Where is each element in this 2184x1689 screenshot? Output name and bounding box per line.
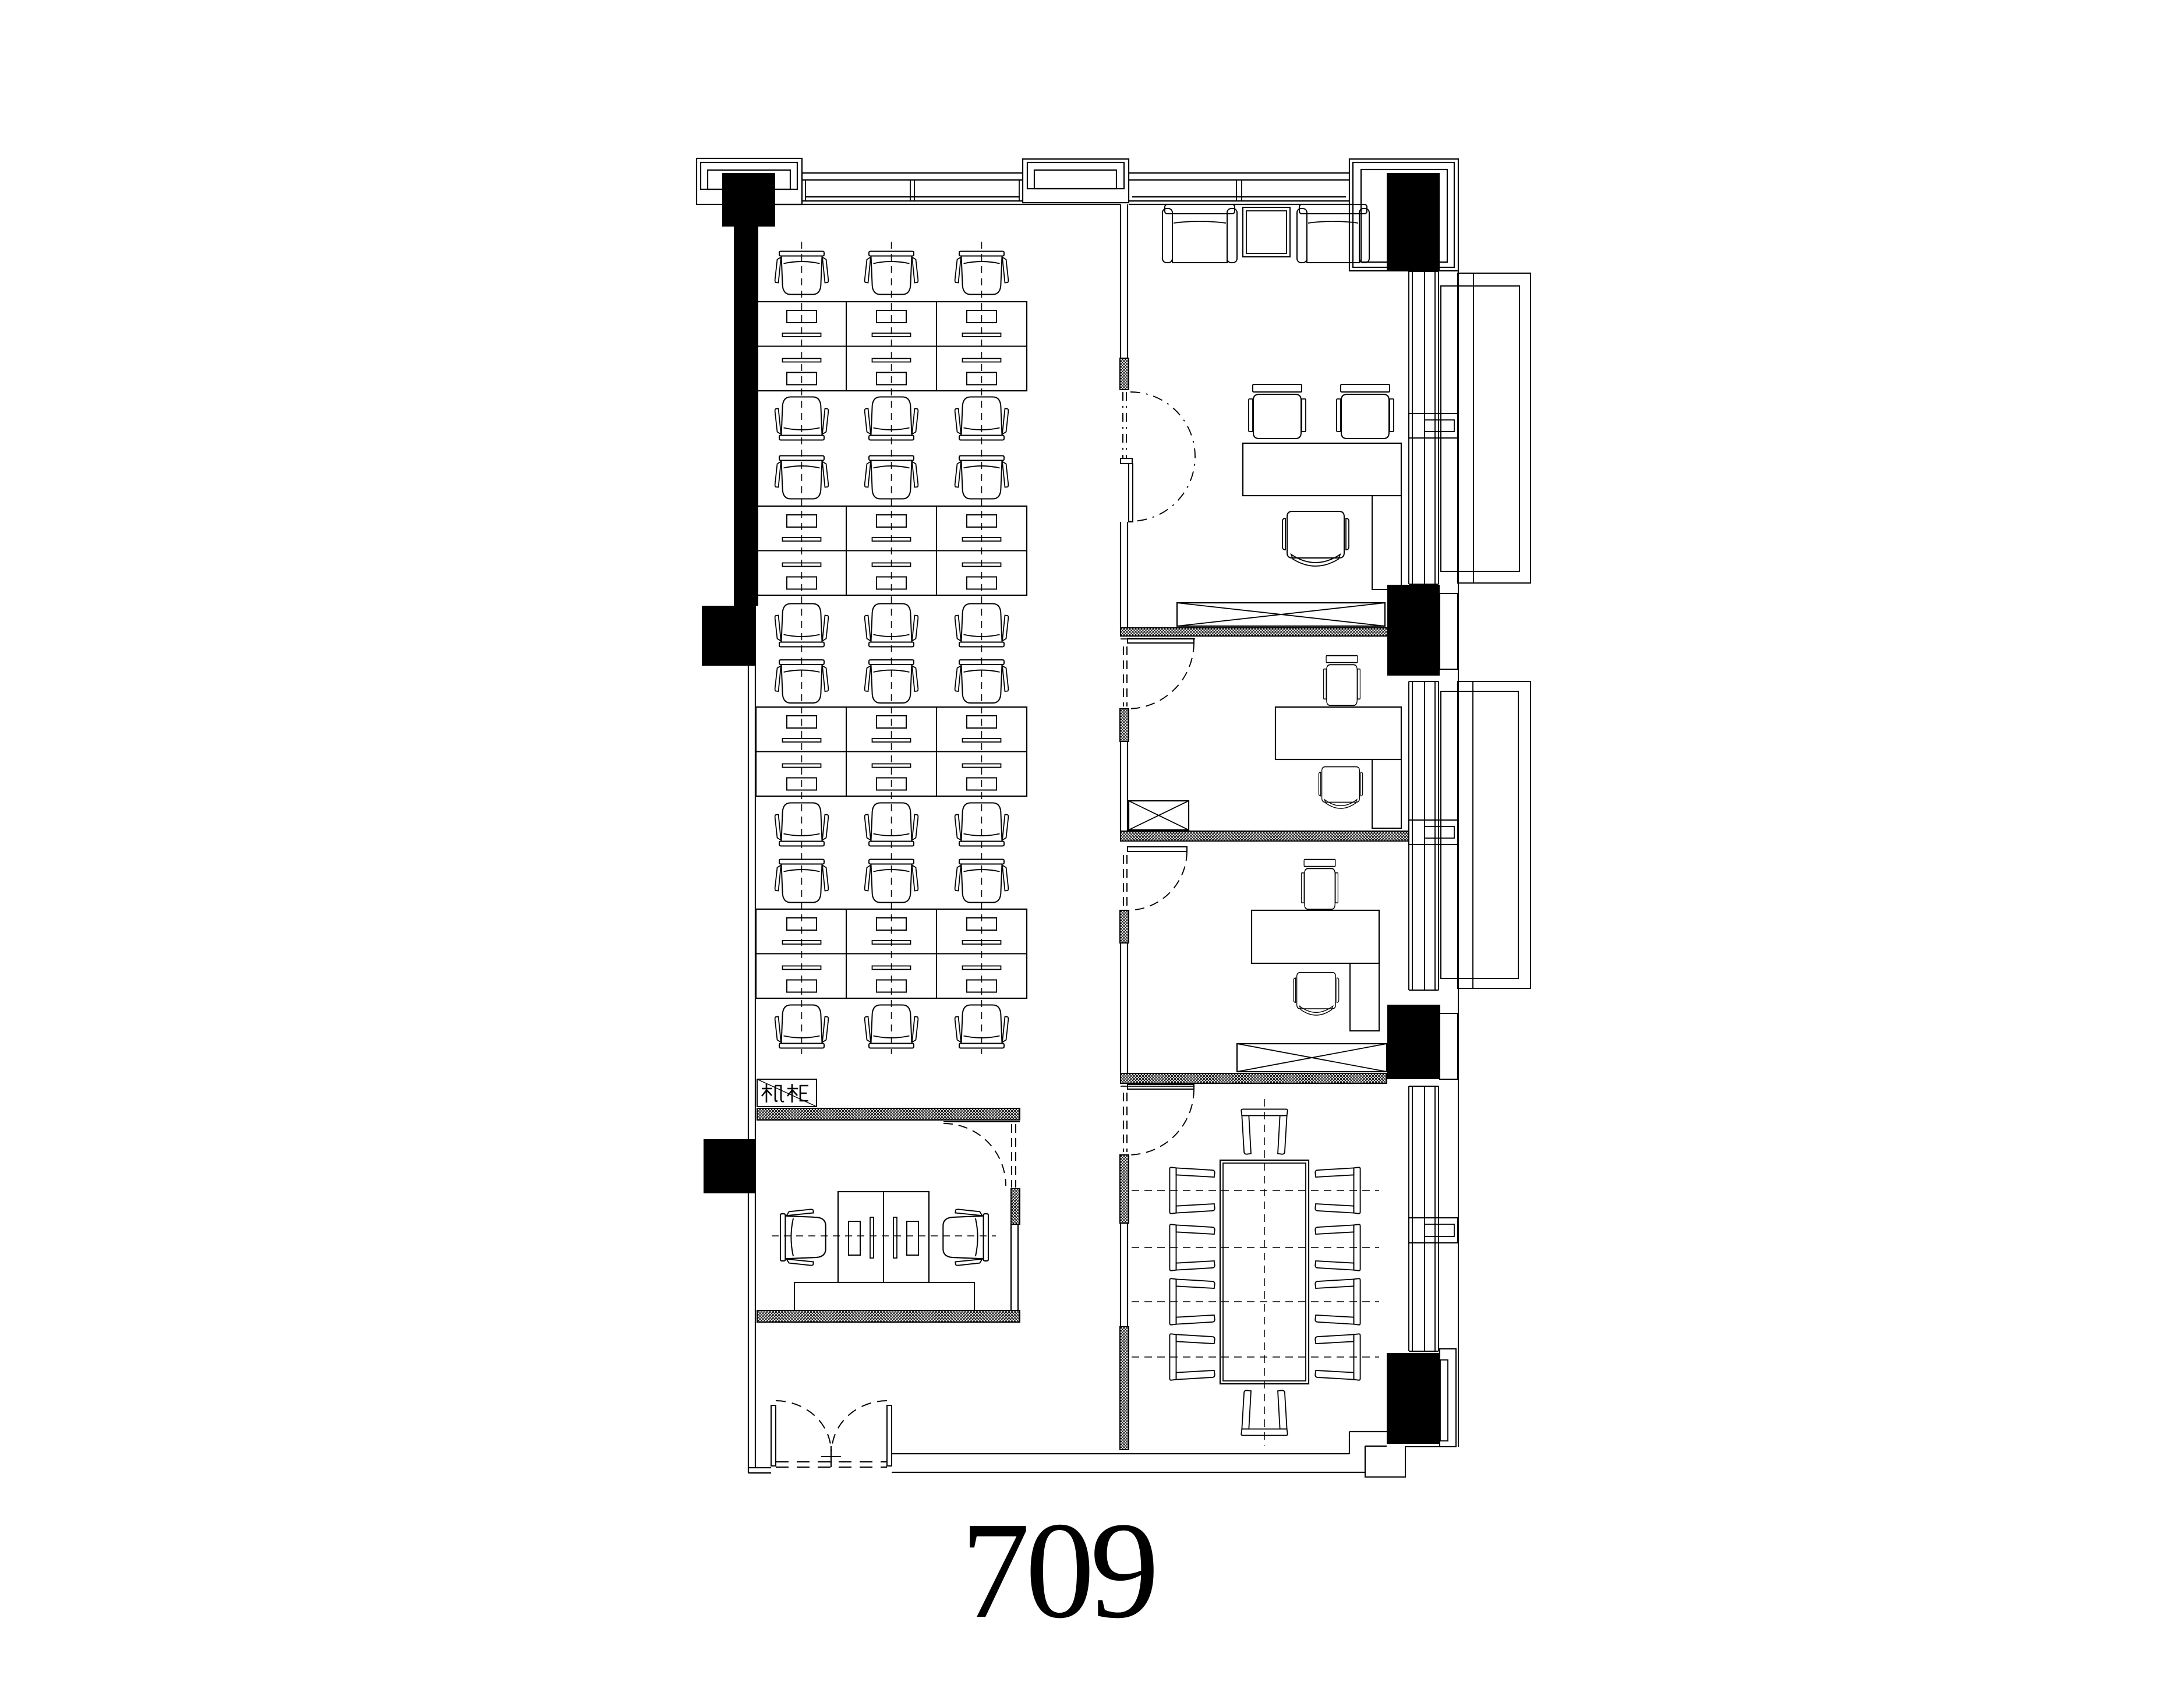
svg-text:709: 709	[961, 1494, 1155, 1647]
